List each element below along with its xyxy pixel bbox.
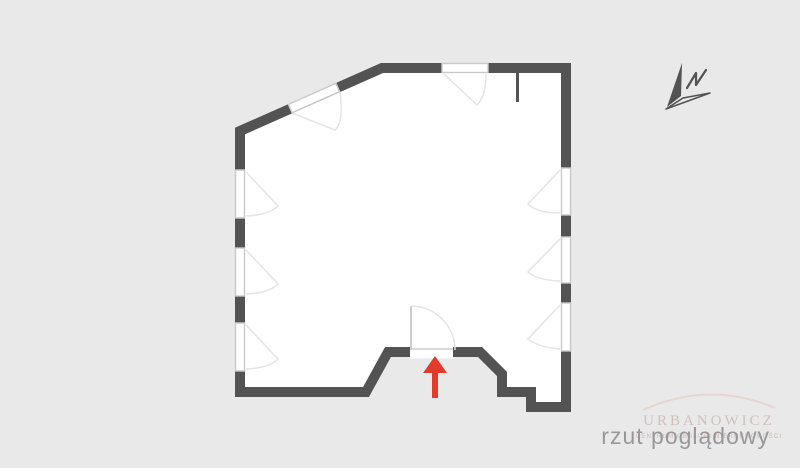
entrance-arrow-icon [423, 356, 447, 398]
window-left-1 [236, 170, 245, 218]
window-left-3 [236, 323, 245, 371]
north-arrow-icon [666, 63, 710, 109]
plan-caption: rzut poglądowy [601, 423, 770, 450]
door-opening [410, 346, 453, 359]
entrance-arrow-stem [432, 370, 438, 398]
window-right-2 [562, 237, 571, 283]
window-top [442, 64, 488, 73]
window-right-3 [562, 303, 571, 351]
room-outline [240, 68, 566, 407]
watermark-arc-icon [639, 388, 779, 412]
entrance-arrow-head [423, 356, 447, 373]
north-letter-glyph [687, 70, 706, 88]
window-right-1 [562, 168, 571, 215]
floorplan-page: URBANOWICZ CENTRUM OBSŁUGI NIERUCHOMOŚCI… [0, 0, 800, 468]
window-left-2 [236, 248, 245, 296]
